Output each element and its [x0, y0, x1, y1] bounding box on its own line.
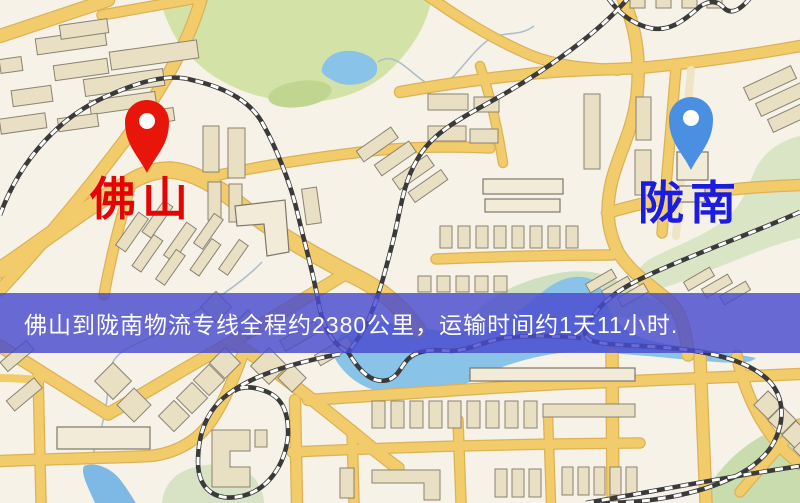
- route-info-text: 佛山到陇南物流专线全程约2380公里，运输时间约1天11小时.: [0, 306, 678, 340]
- origin-label: 佛山: [90, 176, 194, 222]
- map-canvas[interactable]: 佛山 陇南 佛山到陇南物流专线全程约2380公里，运输时间约1天11小时.: [0, 0, 800, 503]
- basemap: [0, 0, 800, 503]
- route-info-banner: 佛山到陇南物流专线全程约2380公里，运输时间约1天11小时.: [0, 293, 800, 353]
- destination-label: 陇南: [638, 180, 742, 226]
